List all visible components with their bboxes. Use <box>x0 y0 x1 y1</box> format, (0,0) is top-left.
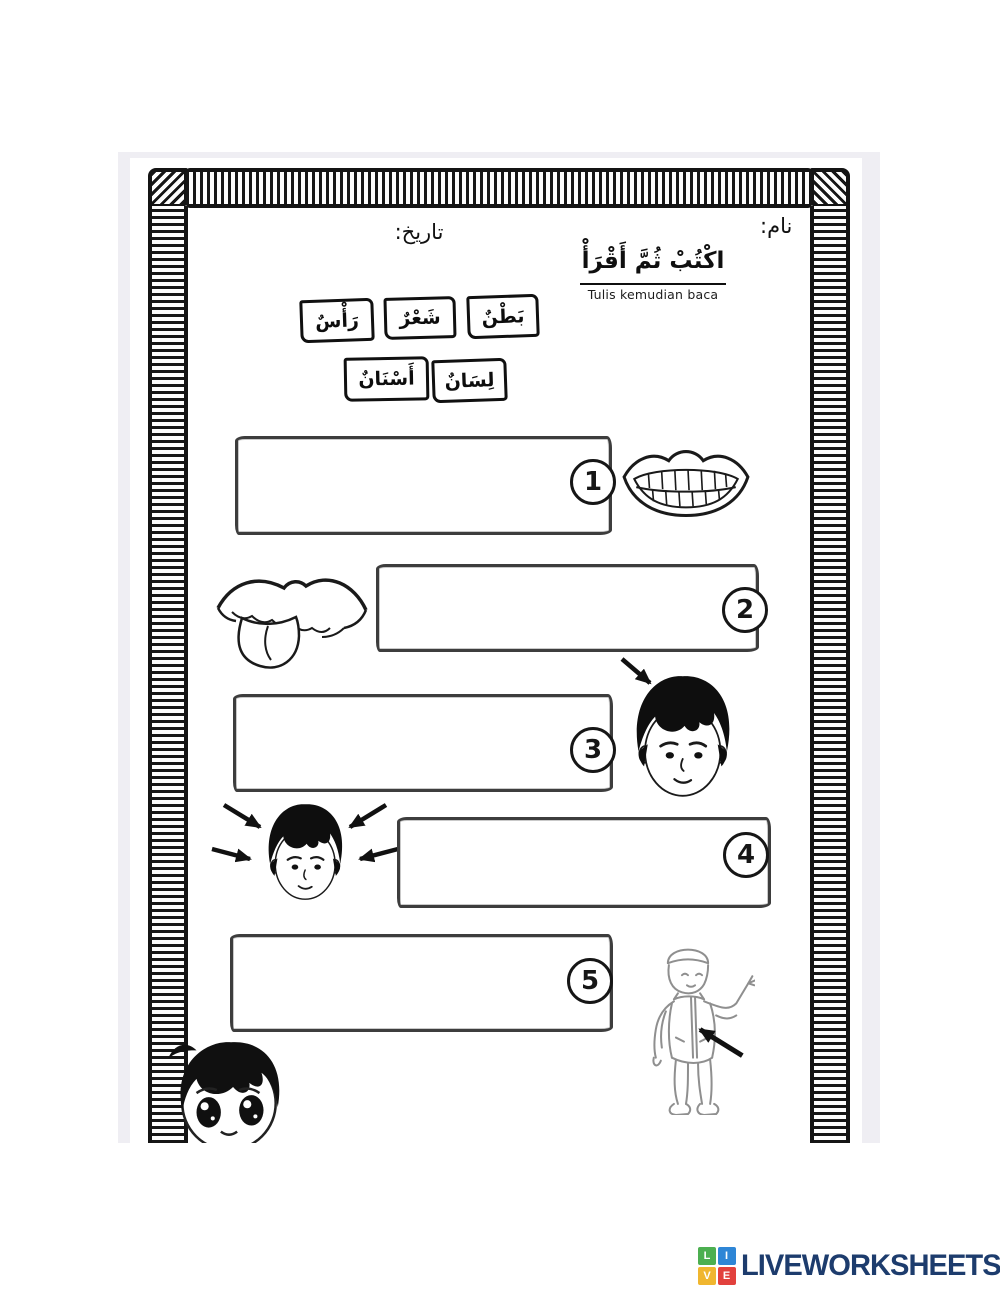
answer-box-3[interactable] <box>233 694 613 792</box>
brand-text: LIVEWORKSHEETS <box>741 1249 1000 1283</box>
name-label: نام: <box>760 214 820 238</box>
tongue-illustration <box>212 566 372 670</box>
standing-boy-illustration <box>623 937 755 1115</box>
answer-number-2: 2 <box>722 587 768 633</box>
logo-tile-i: I <box>718 1247 736 1265</box>
instruction-title-arabic: اكْتُبْ ثُمَّ أَقْرَأْ <box>580 244 727 285</box>
answer-number-4: 4 <box>723 832 769 878</box>
answer-box-2[interactable] <box>376 564 759 652</box>
liveworksheets-icon: L I V E <box>698 1247 736 1285</box>
boy-hair-illustration <box>616 657 752 805</box>
word-box-hair: شَعْرٌ <box>383 296 456 340</box>
answer-box-1[interactable] <box>235 436 612 535</box>
logo-tile-l: L <box>698 1247 716 1265</box>
boy-head-arrows-illustration <box>210 797 400 911</box>
border-right-bar <box>810 206 850 1143</box>
word-box-head: رَأْسٌ <box>299 298 374 344</box>
instruction-block: اكْتُبْ ثُمَّ أَقْرَأْ Tulis kemudian ba… <box>561 244 745 302</box>
border-left-bar <box>148 206 188 1143</box>
instruction-translation: Tulis kemudian baca <box>561 287 745 302</box>
date-label: تاريخ: <box>374 220 464 244</box>
answer-number-1: 1 <box>570 459 616 505</box>
border-corner-top-right-icon <box>810 168 850 208</box>
answer-box-5[interactable] <box>230 934 613 1032</box>
logo-tile-v: V <box>698 1267 716 1285</box>
answer-number-3: 3 <box>570 727 616 773</box>
mouth-teeth-illustration <box>618 436 754 526</box>
answer-number-5: 5 <box>567 958 613 1004</box>
liveworksheets-logo[interactable]: L I V E LIVEWORKSHEETS <box>698 1247 1000 1285</box>
border-top-bar <box>186 168 812 208</box>
answer-box-4[interactable] <box>397 817 771 908</box>
logo-tile-e: E <box>718 1267 736 1285</box>
word-box-belly: بَطْنٌ <box>466 294 539 339</box>
peeking-boy-illustration <box>162 1036 296 1143</box>
word-box-teeth: أَسْنَانٌ <box>344 356 430 401</box>
word-box-tongue: لِسَانٌ <box>431 358 507 404</box>
border-corner-top-left-icon <box>148 168 188 208</box>
worksheet-image: نام: تاريخ: اكْتُبْ ثُمَّ أَقْرَأْ Tulis… <box>118 152 880 1143</box>
